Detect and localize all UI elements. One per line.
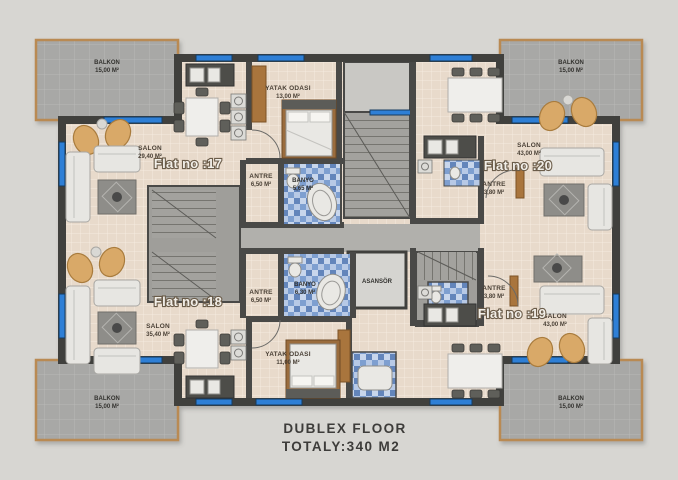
chair [220, 334, 230, 346]
room-area-label: 11,00 M² [276, 359, 299, 366]
side-table [91, 247, 101, 257]
washer [231, 110, 246, 124]
chair [488, 390, 500, 398]
room-area-label: 43,00 M² [517, 150, 541, 157]
wc-flat-20 [444, 160, 480, 186]
chair [470, 390, 482, 398]
toilet-bowl [289, 263, 301, 277]
flat-20-label: Flat no :20 [484, 158, 552, 173]
chair [174, 102, 184, 114]
sink [190, 380, 204, 394]
washer [231, 126, 246, 140]
room-label: BALKON [94, 396, 120, 402]
room-label: ANTRE [249, 173, 273, 180]
wardrobe [252, 66, 266, 122]
window [613, 294, 619, 338]
room-area-label: 13,00 M² [276, 93, 300, 100]
stair-core-left [148, 186, 240, 302]
room-label: ASANSÖR [362, 278, 393, 285]
sink [446, 308, 458, 322]
room-area-label: 6,50 M² [251, 297, 271, 304]
room-label: BALKON [558, 396, 584, 402]
window [430, 55, 472, 61]
pillow [292, 376, 312, 386]
loveseat [588, 184, 612, 230]
window [256, 399, 302, 405]
toilet-bowl [450, 167, 460, 179]
banyo-bottom: BANYO 6,30 M² [284, 254, 350, 316]
washer [231, 330, 246, 344]
window [59, 142, 65, 186]
washer [418, 160, 432, 173]
flat-17-label: Flat no :17 [154, 156, 222, 171]
sofa [66, 152, 90, 222]
chair [174, 334, 184, 346]
chair [196, 88, 208, 96]
room-label: ANTRE [482, 181, 506, 188]
loveseat [94, 146, 140, 172]
building: BALKON 15,00 M² BALKON 15,00 M² BALKON 1… [36, 40, 642, 440]
chair [470, 344, 482, 352]
wall-banyo-top-left [278, 162, 284, 228]
room-area-label: 15,00 M² [95, 67, 119, 74]
caption-line-2: TOTALY:340 M2 [282, 439, 400, 454]
banyo-top: BANYO 5,65 M² [284, 164, 341, 224]
dining-table [448, 354, 502, 388]
dining-table [448, 78, 502, 112]
room-label: SALON [146, 323, 170, 330]
loveseat [94, 348, 140, 374]
room-label: YATAK ODASI [265, 351, 310, 358]
dining-set [448, 68, 502, 122]
room-label: BALKON [94, 60, 120, 66]
room-area-label: 15,00 M² [95, 403, 119, 410]
chair [452, 344, 464, 352]
room-area-label: 15,00 M² [559, 67, 583, 74]
chair [488, 114, 500, 122]
wall-bedroom-bottom-top [246, 316, 350, 322]
room-area-label: 3,80 M² [484, 189, 504, 196]
balcony-top-left: BALKON 15,00 M² [36, 40, 178, 120]
pillow [314, 376, 334, 386]
washer [231, 346, 246, 360]
rug [544, 184, 584, 216]
room-area-label: 6,50 M² [251, 181, 271, 188]
toilet-tank [288, 257, 302, 263]
floor-plan-drawing: Property BALKON 15,00 M² BALKON 15,00 M²… [0, 0, 678, 480]
room-area-label: 6,30 M² [295, 289, 315, 296]
sink [208, 68, 220, 82]
chair [488, 68, 500, 76]
stair-core-flat-20 [344, 62, 414, 218]
chair [470, 68, 482, 76]
kitchen-flat-17 [186, 64, 234, 86]
window [430, 399, 472, 405]
chair [196, 138, 208, 146]
rug [534, 254, 582, 282]
room-label: SALON [543, 313, 567, 320]
sink [446, 140, 458, 154]
room-label: ANTRE [482, 285, 506, 292]
chair [488, 344, 500, 352]
chair [220, 102, 230, 114]
washer [418, 286, 432, 299]
chair [452, 68, 464, 76]
dining-table [186, 98, 218, 136]
window [196, 55, 232, 61]
wall-core-19-left [410, 248, 416, 326]
kitchen-flat-19 [424, 304, 476, 326]
wall-bedroom-top-bottom [246, 158, 344, 164]
toilet-bowl [431, 291, 441, 303]
wall-bedroom-top-left [246, 62, 252, 130]
chair [452, 390, 464, 398]
wall-banyo-bottom-right [350, 252, 356, 318]
room-area-label: 15,00 M² [559, 403, 583, 410]
chair [452, 114, 464, 122]
washer [231, 94, 246, 108]
rug [98, 312, 136, 344]
wall-antre-20-bottom [410, 218, 484, 224]
sink [428, 308, 442, 322]
window [258, 55, 304, 61]
bed-headboard [286, 389, 340, 398]
side-table [563, 95, 573, 105]
toilet-tank [286, 168, 300, 174]
wall-antre-18 [240, 252, 246, 318]
flat-19-label: Flat no :19 [478, 306, 546, 321]
room-label: BANYO [292, 178, 314, 184]
pillow [310, 112, 330, 122]
side-table [97, 119, 107, 129]
chair [174, 120, 184, 132]
room-label: YATAK ODASI [265, 85, 310, 92]
room-label: ANTRE [249, 289, 273, 296]
wall-core-right-top [410, 62, 416, 224]
wall-antre-17 [240, 160, 246, 224]
room-area-label: 43,00 M² [543, 321, 567, 328]
room-area-label: 5,65 M² [293, 185, 313, 192]
void-shaft [344, 62, 410, 112]
loveseat [588, 318, 612, 364]
dining-table [186, 330, 218, 368]
chair [174, 352, 184, 364]
dining-set [448, 344, 502, 398]
wc-ensuite-bottom [352, 352, 396, 398]
chair [220, 120, 230, 132]
window [196, 399, 232, 405]
sink [208, 380, 220, 394]
wall-corridor-bottom [240, 248, 344, 254]
sofa [66, 286, 90, 364]
window [370, 110, 414, 115]
floor-plan-page: Property BALKON 15,00 M² BALKON 15,00 M²… [0, 0, 678, 480]
rug [98, 180, 136, 214]
elevator: ASANSÖR [348, 252, 406, 308]
sink [190, 68, 204, 82]
room-area-label: 35,40 M² [146, 331, 170, 338]
flat-18-label: Flat no :18 [154, 294, 222, 309]
chair [196, 320, 208, 328]
room-label: SALON [517, 142, 541, 149]
sink [428, 140, 442, 154]
bed-headboard [282, 100, 336, 109]
window [59, 294, 65, 338]
bathtub [358, 366, 392, 390]
room-label: BANYO [294, 282, 316, 288]
sofa [540, 286, 604, 314]
caption-line-1: DUBLEX FLOOR [283, 421, 406, 436]
chair [470, 114, 482, 122]
balcony-bottom-right: BALKON 15,00 M² [500, 360, 642, 440]
loveseat [94, 280, 140, 306]
wall-banyo-bottom-left [278, 252, 284, 318]
pillow [288, 112, 308, 122]
room-label: BALKON [558, 60, 584, 66]
window [613, 142, 619, 186]
kitchen-flat-18 [186, 376, 234, 398]
room-area-label: 3,80 M² [484, 293, 504, 300]
chair [220, 352, 230, 364]
wall-bedroom-bottom-left [246, 316, 252, 398]
room-label: SALON [138, 145, 162, 152]
